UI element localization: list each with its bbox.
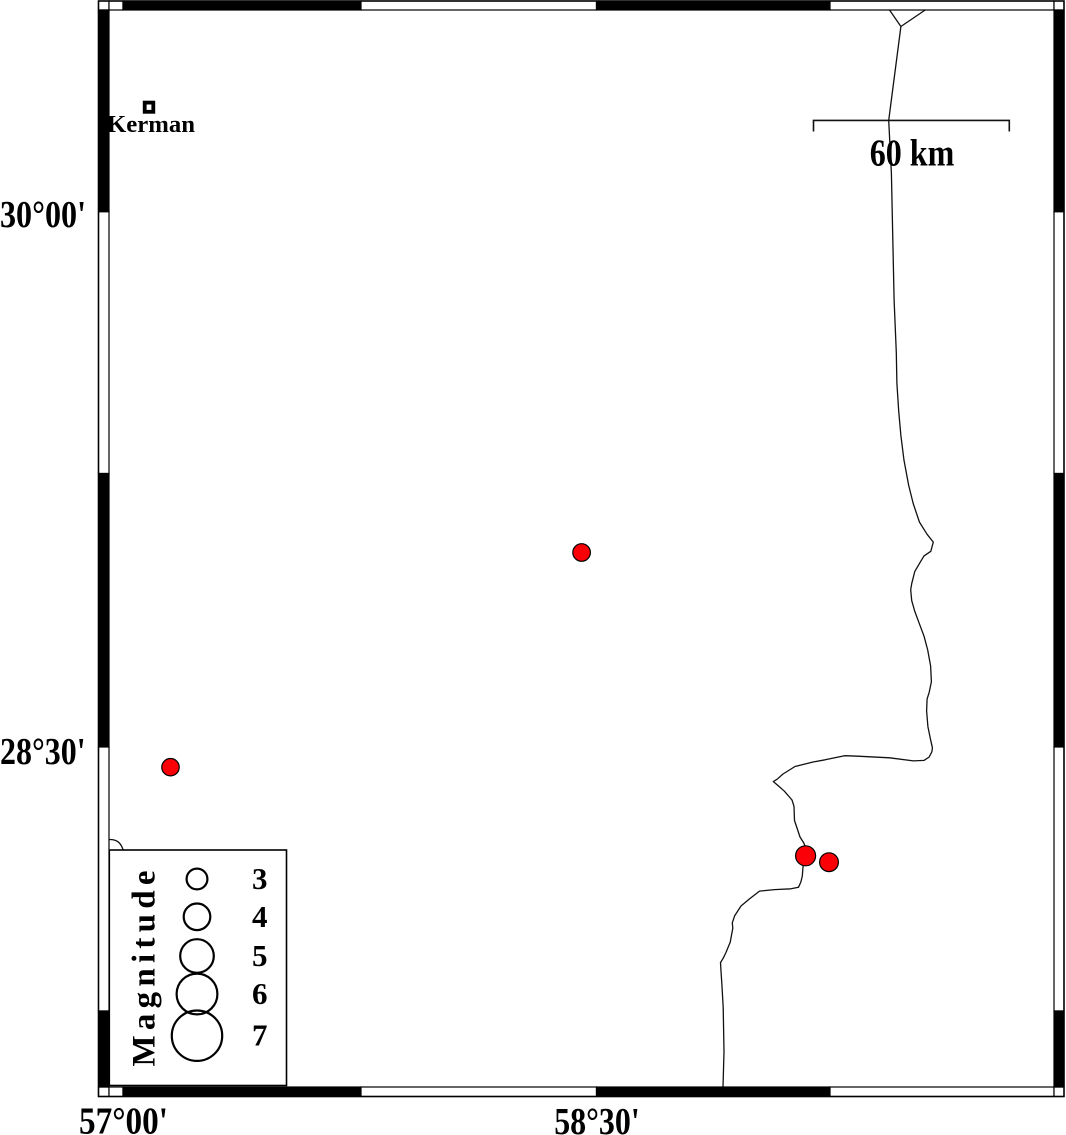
- svg-text:3: 3: [252, 861, 268, 896]
- svg-text:60 km: 60 km: [870, 132, 955, 174]
- svg-text:Magnitude: Magnitude: [127, 871, 163, 1067]
- svg-text:28°30': 28°30': [0, 731, 86, 773]
- svg-text:57°00': 57°00': [79, 1101, 168, 1135]
- svg-text:4: 4: [252, 899, 268, 934]
- svg-text:58°30': 58°30': [554, 1101, 640, 1135]
- svg-text:7: 7: [252, 1018, 268, 1053]
- svg-text:6: 6: [252, 976, 268, 1011]
- svg-text:5: 5: [252, 938, 268, 973]
- svg-text:30°00': 30°00': [0, 194, 86, 236]
- svg-text:Kerman: Kerman: [107, 112, 195, 138]
